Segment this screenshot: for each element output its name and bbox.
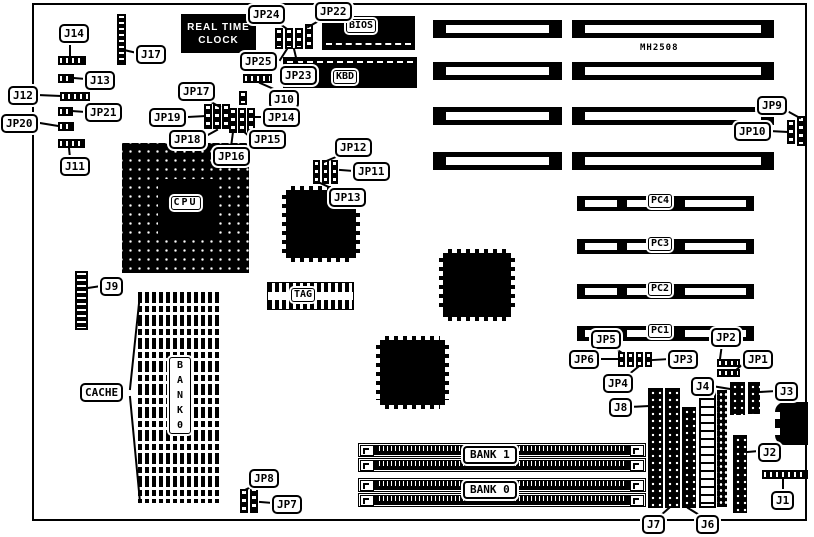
callout-j3: J3	[775, 382, 798, 401]
callout-j11: J11	[60, 157, 90, 176]
callout-jp20: JP20	[1, 114, 38, 133]
callout-jp8: JP8	[249, 469, 279, 488]
callout-j9: J9	[100, 277, 123, 296]
callout-jp1: JP1	[743, 350, 773, 369]
callout-jp13: JP13	[329, 188, 366, 207]
callout-jp11: JP11	[353, 162, 390, 181]
callout-jp10: JP10	[734, 122, 771, 141]
callout-jp6: JP6	[569, 350, 599, 369]
callout-j8: J8	[609, 398, 632, 417]
callout-jp22: JP22	[315, 2, 352, 21]
callout-j1: J1	[771, 491, 794, 510]
callout-jp7: JP7	[272, 495, 302, 514]
callout-jp14: JP14	[263, 108, 300, 127]
callout-j4: J4	[691, 377, 714, 396]
callout-j14: J14	[59, 24, 89, 43]
callout-jp21: JP21	[85, 103, 122, 122]
callout-jp16: JP16	[213, 147, 250, 166]
callout-jp18: JP18	[169, 130, 206, 149]
callout-j17: J17	[136, 45, 166, 64]
callout-j10: J10	[269, 90, 299, 109]
callout-jp3: JP3	[668, 350, 698, 369]
callout-j6: J6	[696, 515, 719, 534]
motherboard-diagram: MH2508 PC4 PC3 PC2 PC1 REAL TIME CLOCK B…	[0, 0, 814, 537]
callout-jp2: JP2	[711, 328, 741, 347]
callout-j7: J7	[642, 515, 665, 534]
callout-jp4: JP4	[603, 374, 633, 393]
callout-jp5: JP5	[591, 330, 621, 349]
callout-jp9: JP9	[757, 96, 787, 115]
callout-j12: J12	[8, 86, 38, 105]
callout-jp15: JP15	[249, 130, 286, 149]
callout-j13: J13	[85, 71, 115, 90]
callout-jp23: JP23	[280, 66, 317, 85]
callout-cache: CACHE	[80, 383, 123, 402]
callout-j2: J2	[758, 443, 781, 462]
callout-layer: J14J17J13J12JP21JP20J11JP24JP22JP25JP23J…	[0, 0, 814, 537]
callout-jp12: JP12	[335, 138, 372, 157]
callout-jp24: JP24	[248, 5, 285, 24]
callout-jp19: JP19	[149, 108, 186, 127]
callout-jp17: JP17	[178, 82, 215, 101]
callout-jp25: JP25	[240, 52, 277, 71]
